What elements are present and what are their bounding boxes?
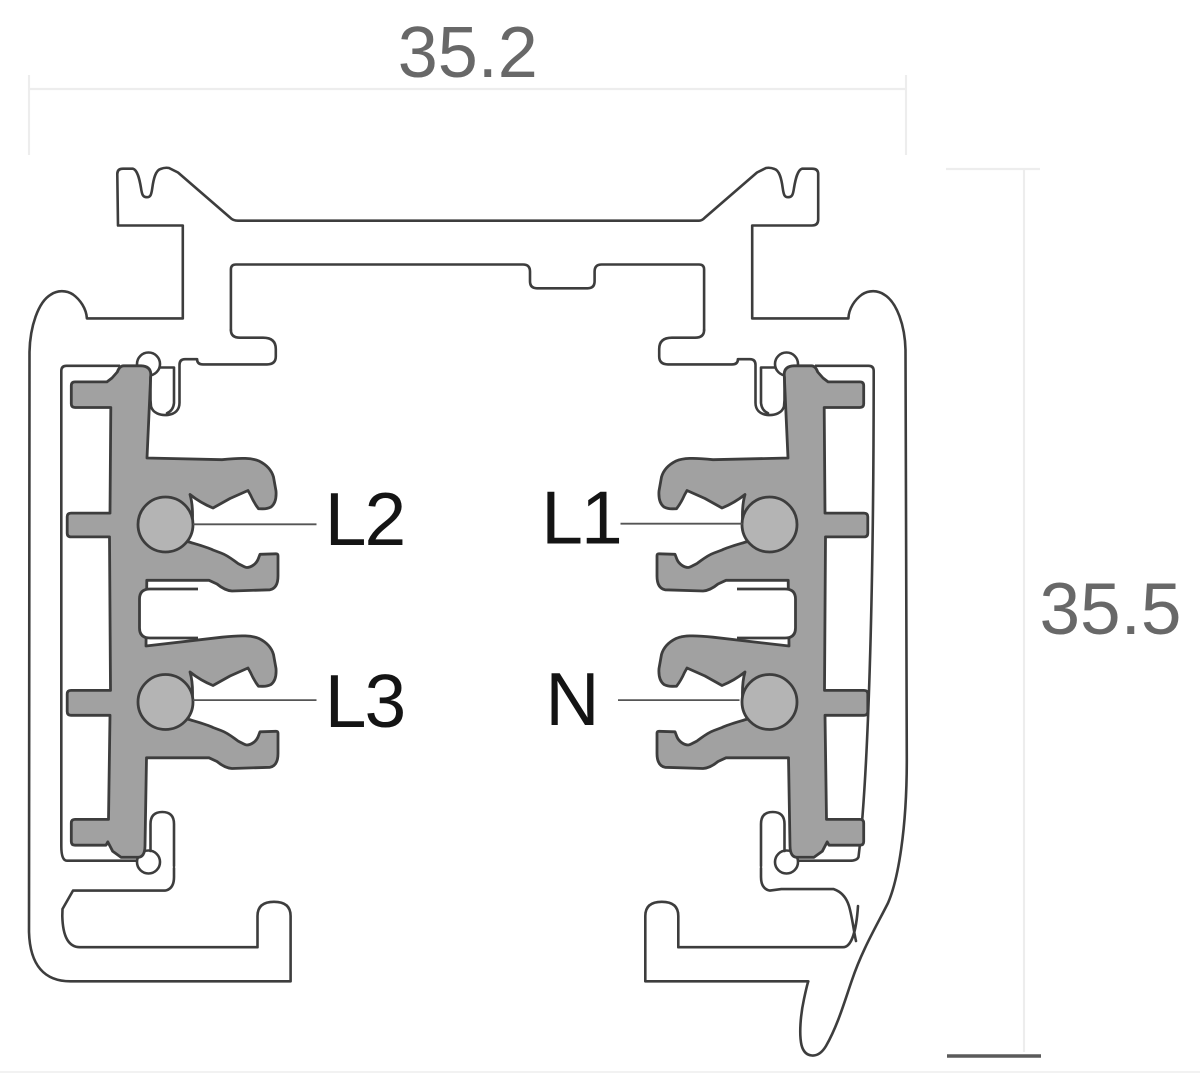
svg-text:N: N [545, 657, 599, 741]
svg-text:L1: L1 [541, 476, 620, 560]
svg-text:35.5: 35.5 [1039, 569, 1181, 650]
svg-text:35.2: 35.2 [398, 13, 538, 93]
svg-text:L3: L3 [325, 659, 404, 743]
svg-text:L2: L2 [325, 477, 404, 561]
